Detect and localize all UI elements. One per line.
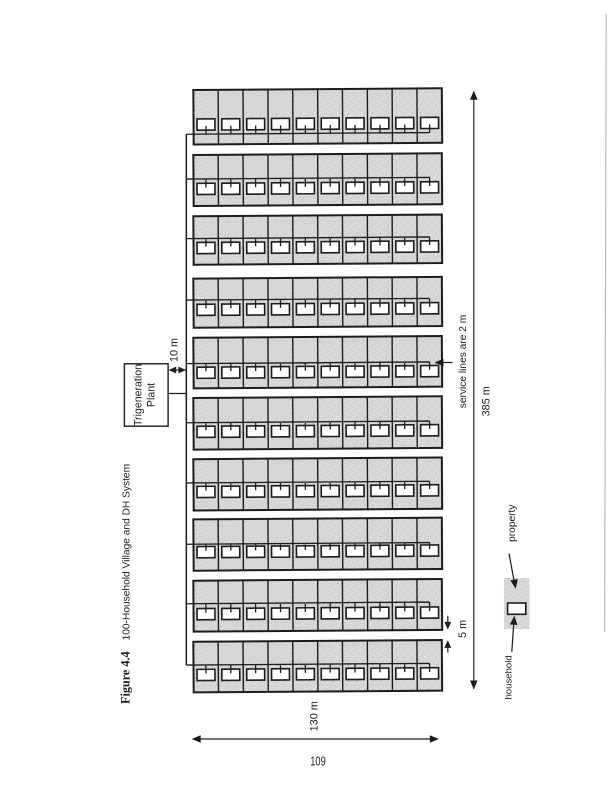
svg-text:household: household [504, 655, 515, 699]
svg-text:109: 109 [310, 754, 326, 769]
svg-text:5 m: 5 m [457, 620, 469, 638]
svg-text:130 m: 130 m [308, 701, 320, 731]
svg-text:service lines are 2 m: service lines are 2 m [458, 315, 469, 408]
svg-text:Figure 4.4100-Household Villag: Figure 4.4100-Household Village and DH S… [119, 464, 133, 704]
svg-text:property: property [507, 504, 518, 542]
svg-text:Trigeneration: Trigeneration [133, 364, 145, 426]
svg-text:Plant: Plant [146, 383, 158, 407]
svg-text:385 m: 385 m [480, 386, 492, 416]
svg-text:10 m: 10 m [168, 338, 180, 362]
